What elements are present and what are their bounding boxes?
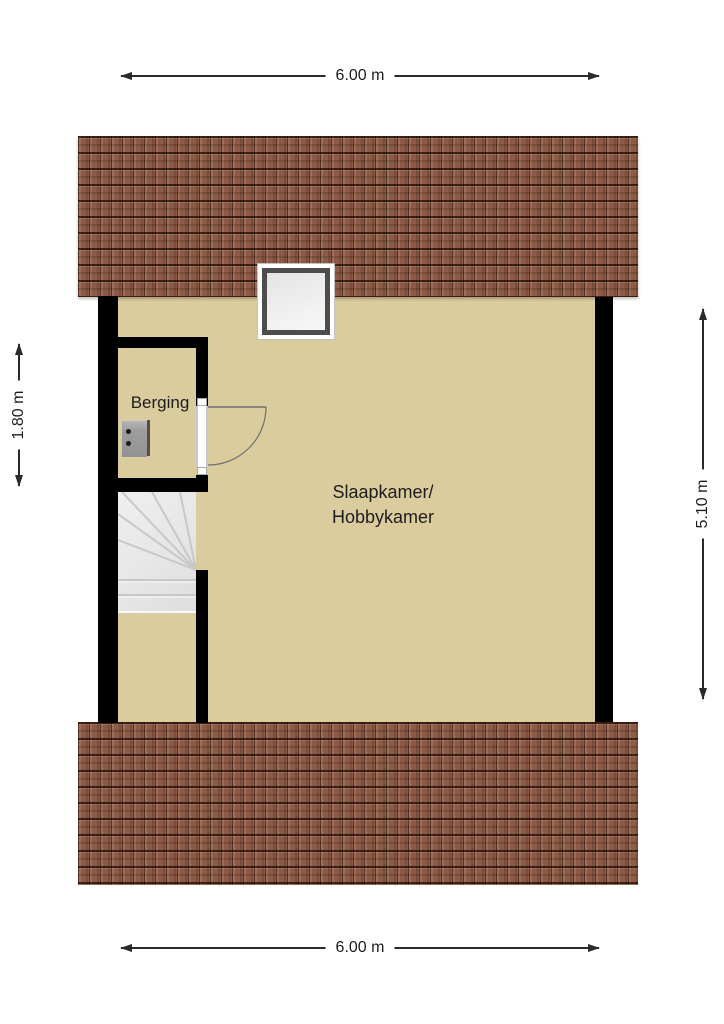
boiler-pipe xyxy=(147,420,150,456)
arrow-left-icon xyxy=(120,944,132,952)
dimension-right: 5.10 m xyxy=(695,308,711,700)
roof-section-top xyxy=(78,136,638,297)
arrow-up-icon xyxy=(699,308,707,320)
arrow-up-icon xyxy=(15,343,23,355)
arrow-down-icon xyxy=(15,475,23,487)
room-label-main: Slaapkamer/ Hobbykamer xyxy=(283,480,483,530)
wall-stairwell-right xyxy=(196,570,208,723)
wall-outer-right xyxy=(595,297,613,722)
boiler-knob-icon xyxy=(126,441,131,446)
boiler-unit-icon xyxy=(122,420,151,457)
boiler-body xyxy=(122,420,147,457)
room-label-main-line1: Slaapkamer/ xyxy=(332,482,433,502)
floorplan-canvas: Berging Slaapkamer/ Hobbykamer 6.00 m 6.… xyxy=(0,0,724,1024)
winder-staircase xyxy=(118,492,196,613)
wall-berging-top xyxy=(118,337,207,348)
wall-berging-bottom xyxy=(118,478,208,492)
wall-outer-left xyxy=(98,296,118,723)
arrow-right-icon xyxy=(588,944,600,952)
room-label-berging: Berging xyxy=(110,393,210,413)
skylight-glass xyxy=(262,268,330,335)
arrow-left-icon xyxy=(120,72,132,80)
dimension-left-value: 1.80 m xyxy=(10,381,28,450)
skylight-window xyxy=(257,263,335,340)
arrow-right-icon xyxy=(588,72,600,80)
arrow-down-icon xyxy=(699,688,707,700)
dimension-right-value: 5.10 m xyxy=(694,470,712,539)
roof-section-bottom xyxy=(78,722,638,885)
dimension-bottom-value: 6.00 m xyxy=(326,939,395,957)
room-label-main-line2: Hobbykamer xyxy=(332,507,434,527)
dimension-top: 6.00 m xyxy=(120,68,600,84)
dimension-left: 1.80 m xyxy=(11,343,27,487)
boiler-knob-icon xyxy=(126,429,131,434)
stair-steps-icon xyxy=(118,492,196,613)
dimension-top-value: 6.00 m xyxy=(326,67,395,85)
dimension-bottom: 6.00 m xyxy=(120,940,600,956)
